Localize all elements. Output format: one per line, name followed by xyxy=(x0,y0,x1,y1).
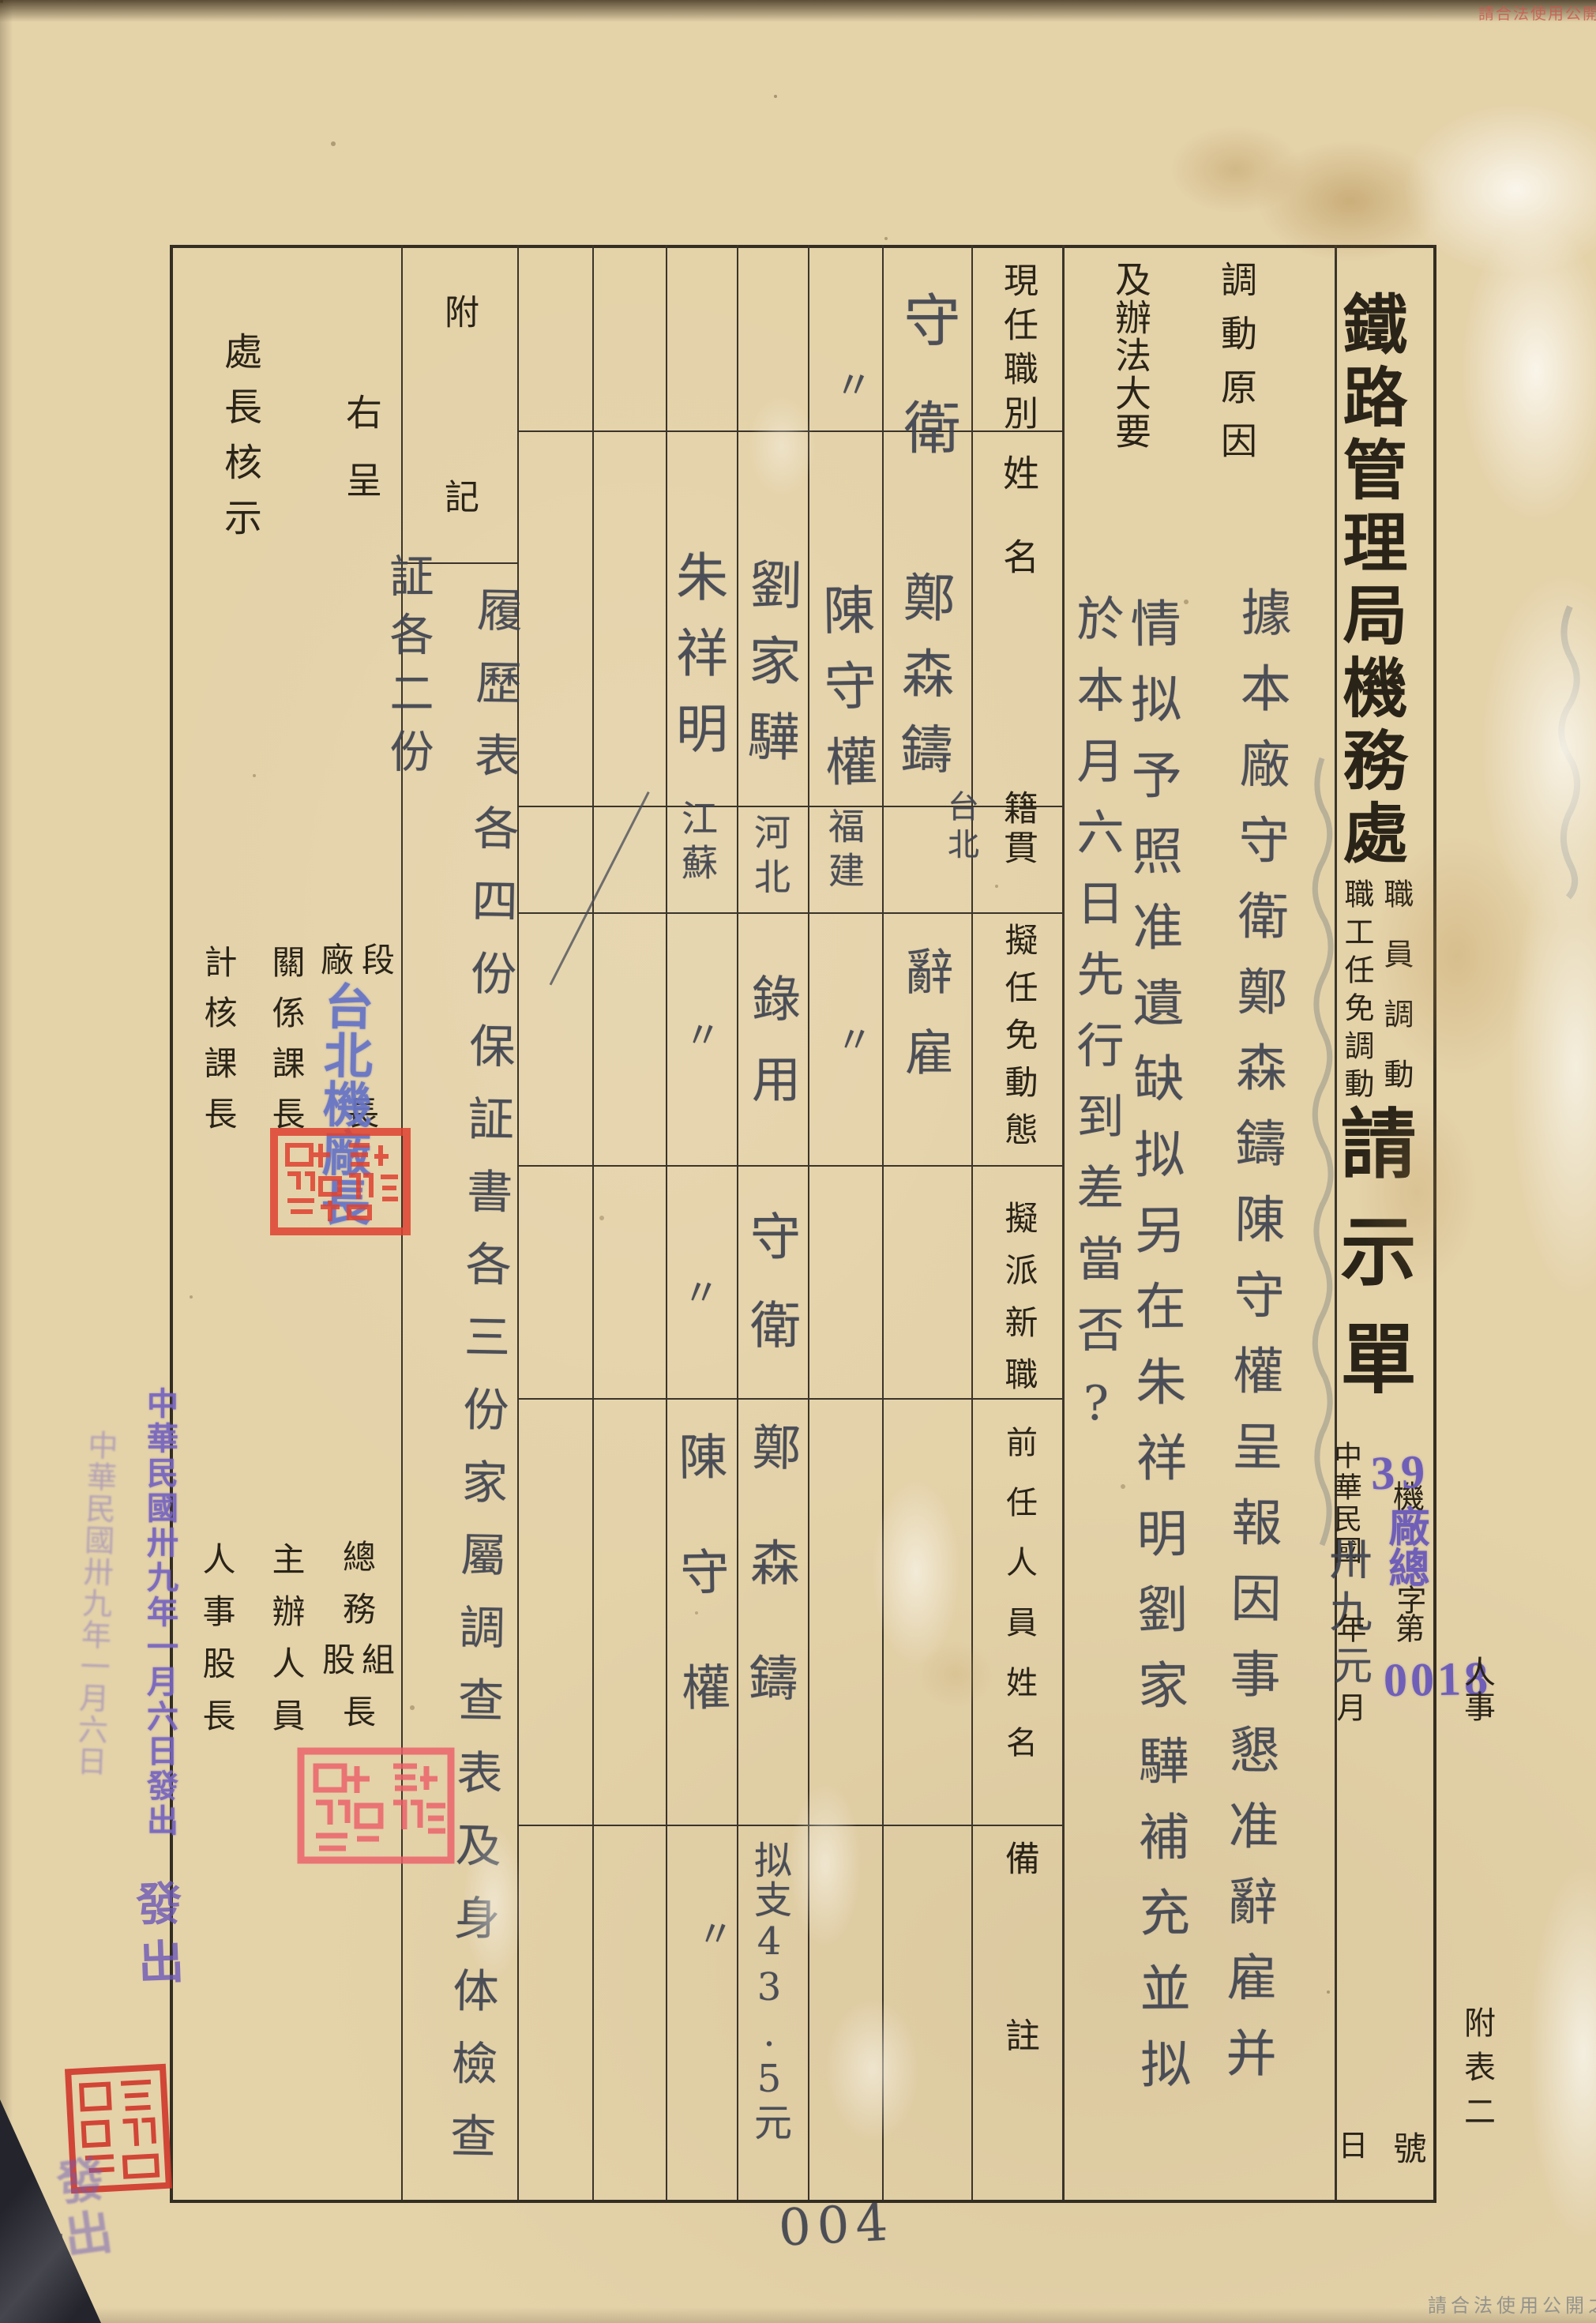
cell-action: 辭雇 xyxy=(900,946,949,1107)
row-header-new-post: 擬派新職 xyxy=(1001,1201,1035,1409)
sig-duan: 段 xyxy=(362,945,395,978)
grid-hline xyxy=(517,806,1064,807)
cell-action: 〃 xyxy=(834,1021,870,1057)
sig-personnel-chief: 人事股長 xyxy=(199,1542,232,1750)
watermark-bottom: 請合法使用公開之影像 xyxy=(1428,2297,1596,2316)
page-number-handwritten: 004 xyxy=(777,2197,895,2254)
cell-native-place: 福建 xyxy=(826,807,862,896)
row-header-name: 姓名 xyxy=(1000,454,1036,622)
margin-label-fubiao: 附表二 xyxy=(1461,2006,1493,2139)
docno-suffix: 號 xyxy=(1390,2131,1423,2164)
grid-vline xyxy=(666,245,667,2200)
sig-related-section-chief: 關係課長 xyxy=(269,945,302,1147)
red-seal-personal-large xyxy=(297,1747,455,1864)
date-month-unit: 月 xyxy=(1333,1692,1363,1722)
row-header-remarks: 備註 xyxy=(1001,1840,1036,2194)
reason-header-line1: 調動原因 xyxy=(1218,261,1254,476)
grid-vline xyxy=(882,245,884,2200)
cell-action: 錄用 xyxy=(747,973,796,1134)
cell-native-place: 江蘇 xyxy=(679,799,715,888)
cell-remarks: 拟支43.5元 xyxy=(750,1840,788,2142)
bleedthrough-scribble xyxy=(1549,600,1587,900)
reason-handwritten-line2: 情拟予照准遺缺拟另在朱祥明劉家驊補充並拟 xyxy=(1125,597,1186,2114)
sig-chang: 廠 xyxy=(321,945,354,978)
docno-di: 第 xyxy=(1391,1613,1421,1643)
cell-native-place: 河北 xyxy=(752,814,788,902)
grid-vline xyxy=(737,245,738,2200)
reason-handwritten-line3: 於本月六日先行到差當否? xyxy=(1072,594,1120,1455)
notes-handwritten-line2: 証各二份 xyxy=(385,553,430,787)
cell-native-place: 台北 xyxy=(944,790,976,866)
submit-label: 右呈 xyxy=(343,393,379,529)
watermark-top-right: 請合法使用公開之影像 xyxy=(1478,6,1596,22)
grid-hline xyxy=(517,912,1064,914)
cell-new-post: 守衛 xyxy=(745,1210,796,1387)
sig-audit-section-chief: 計核課長 xyxy=(201,945,234,1147)
cell-name: 朱祥明 xyxy=(671,550,723,777)
sig-zong: 總 xyxy=(343,1542,376,1575)
grid-hline xyxy=(517,1165,1064,1167)
grid-vline xyxy=(971,245,973,2200)
docno-zi: 字 xyxy=(1393,1584,1423,1614)
scanned-form-page: 鐵路管理局機務處 職員調動 職工任免調動 請示單 中華民國 卅九 年 元 月 日… xyxy=(0,0,1596,2323)
grid-hline xyxy=(517,430,1064,432)
cell-predecessor: 鄭森鑄 xyxy=(743,1422,797,1769)
cell-name: 鄭森鑄 xyxy=(895,569,951,798)
cell-name: 劉家驊 xyxy=(742,557,798,785)
cell-predecessor: 陳守權 xyxy=(674,1431,727,1778)
issued-marks-stamp: 發出 xyxy=(130,1879,180,1998)
bleedthrough-scribble xyxy=(1303,750,1338,1627)
grid-vline xyxy=(592,245,594,2200)
sig-wu: 務 xyxy=(343,1594,376,1627)
subtitle-staff: 職員調動 xyxy=(1380,878,1410,1118)
chief-review-label: 處長核示 xyxy=(220,332,257,553)
paper-specks xyxy=(0,0,3,3)
cell-remarks: 〃 xyxy=(695,1915,731,1951)
grid-vline xyxy=(1062,245,1065,2200)
cell-action: 〃 xyxy=(682,1016,719,1052)
cell-current-title: 守衛 xyxy=(899,291,956,506)
sig-handling-officer: 主辦人員 xyxy=(269,1542,302,1750)
row-header-predecessor: 前任人員姓名 xyxy=(1003,1426,1035,1786)
docno-year-stamp: 39 xyxy=(1370,1448,1432,1498)
red-seal-office xyxy=(270,1128,411,1235)
grid-hline xyxy=(517,1825,1064,1826)
reason-handwritten-line1: 據本廠守衛鄭森鑄陳守權呈報因事懇准辭雇并 xyxy=(1221,586,1287,2103)
grid-vline xyxy=(808,245,809,2200)
grid-hline xyxy=(517,1398,1064,1400)
date-month-handwritten: 元 xyxy=(1330,1645,1369,1684)
sig-zongwu-zhang: 長 xyxy=(343,1697,376,1730)
margin-label-renshi: 人事 xyxy=(1461,1656,1493,1725)
sig-gu: 股 xyxy=(322,1645,355,1678)
cell-name: 陳守權 xyxy=(817,582,873,810)
title-tail: 請示單 xyxy=(1333,1104,1409,1427)
issue-date-stamp-ghost: 中華民國卅九年一月六日 xyxy=(73,1429,115,1777)
issue-date-stamp: 中華民國卅九年一月六日發出 xyxy=(144,1387,175,1839)
cell-new-post: 〃 xyxy=(681,1273,717,1310)
row-header-action: 擬任免動態 xyxy=(1001,923,1035,1160)
subtitle-workers: 職工任免調動 xyxy=(1341,878,1371,1106)
docno-office-stamp: 廠總 xyxy=(1384,1505,1425,1588)
date-day-unit: 日 xyxy=(1335,2129,1365,2159)
row-header-current-title: 現任職別 xyxy=(1000,262,1035,439)
reason-header-line2: 及辦法大要 xyxy=(1112,261,1148,450)
row-header-native-place: 籍貫 xyxy=(1000,790,1035,869)
sig-zu: 組 xyxy=(362,1645,395,1678)
org-title: 鐵路管理局機務處 xyxy=(1336,291,1401,872)
grid-vline xyxy=(517,245,519,2200)
cell-current-title: 〃 xyxy=(831,365,869,403)
